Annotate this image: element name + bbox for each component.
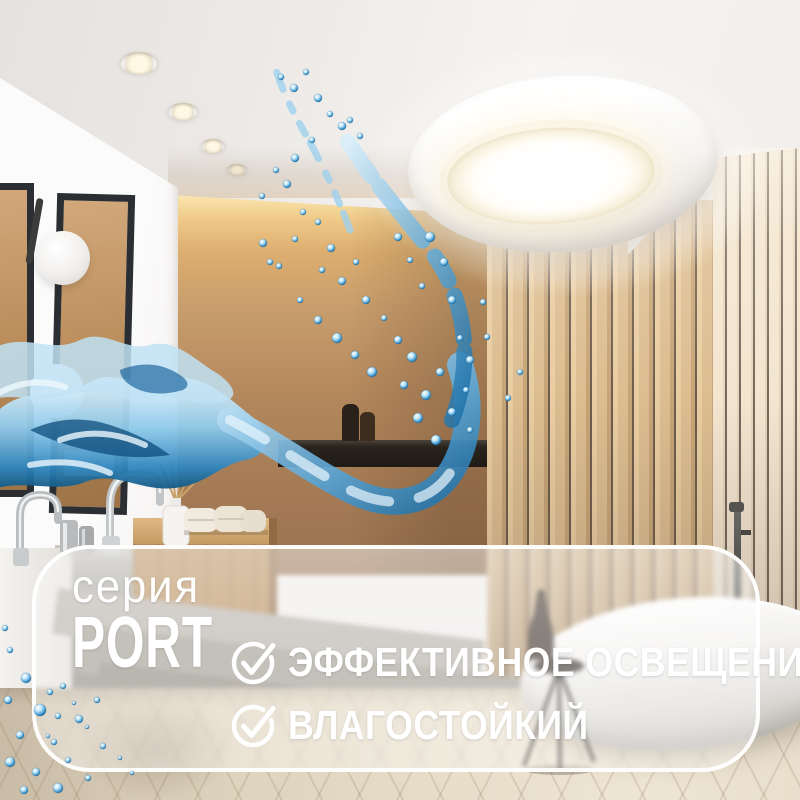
feature-row-lighting: ЭФФЕКТИВНОЕ ОСВЕЩЕНИЕ	[230, 638, 800, 686]
series-name: PORT	[72, 607, 213, 679]
product-marketing-image: серия PORT ЭФФЕКТИВНОЕ ОСВЕЩЕНИЕ ВЛАГОСТ…	[0, 0, 800, 800]
recessed-spotlight-1	[120, 52, 158, 74]
sphere-wall-lamp-1	[36, 231, 90, 285]
check-circle-icon	[230, 638, 278, 686]
recessed-spotlight-2	[168, 103, 198, 120]
shelf-bottle-2	[360, 412, 375, 441]
feature-row-moisture: ВЛАГОСТОЙКИЙ	[230, 701, 634, 749]
wall-shelf	[278, 440, 492, 467]
feature-label: ЭФФЕКТИВНОЕ ОСВЕЩЕНИЕ	[288, 638, 800, 686]
floor-faucet-head	[729, 502, 744, 512]
feature-label: ВЛАГОСТОЙКИЙ	[288, 701, 589, 749]
towel-roll	[240, 510, 266, 532]
promo-banner: серия PORT ЭФФЕКТИВНОЕ ОСВЕЩЕНИЕ ВЛАГОСТ…	[32, 545, 760, 772]
floor-faucet-bracket	[741, 530, 751, 535]
shelf-bottle-1	[342, 404, 359, 441]
sphere-wall-lamp-2	[30, 364, 84, 418]
check-circle-icon	[230, 701, 278, 749]
